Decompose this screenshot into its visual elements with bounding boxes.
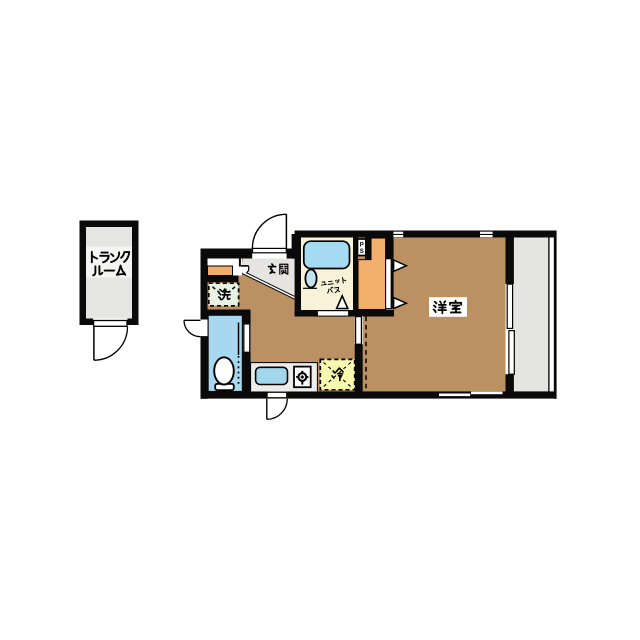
svg-text:S: S	[360, 249, 364, 255]
svg-text:P: P	[360, 242, 364, 248]
